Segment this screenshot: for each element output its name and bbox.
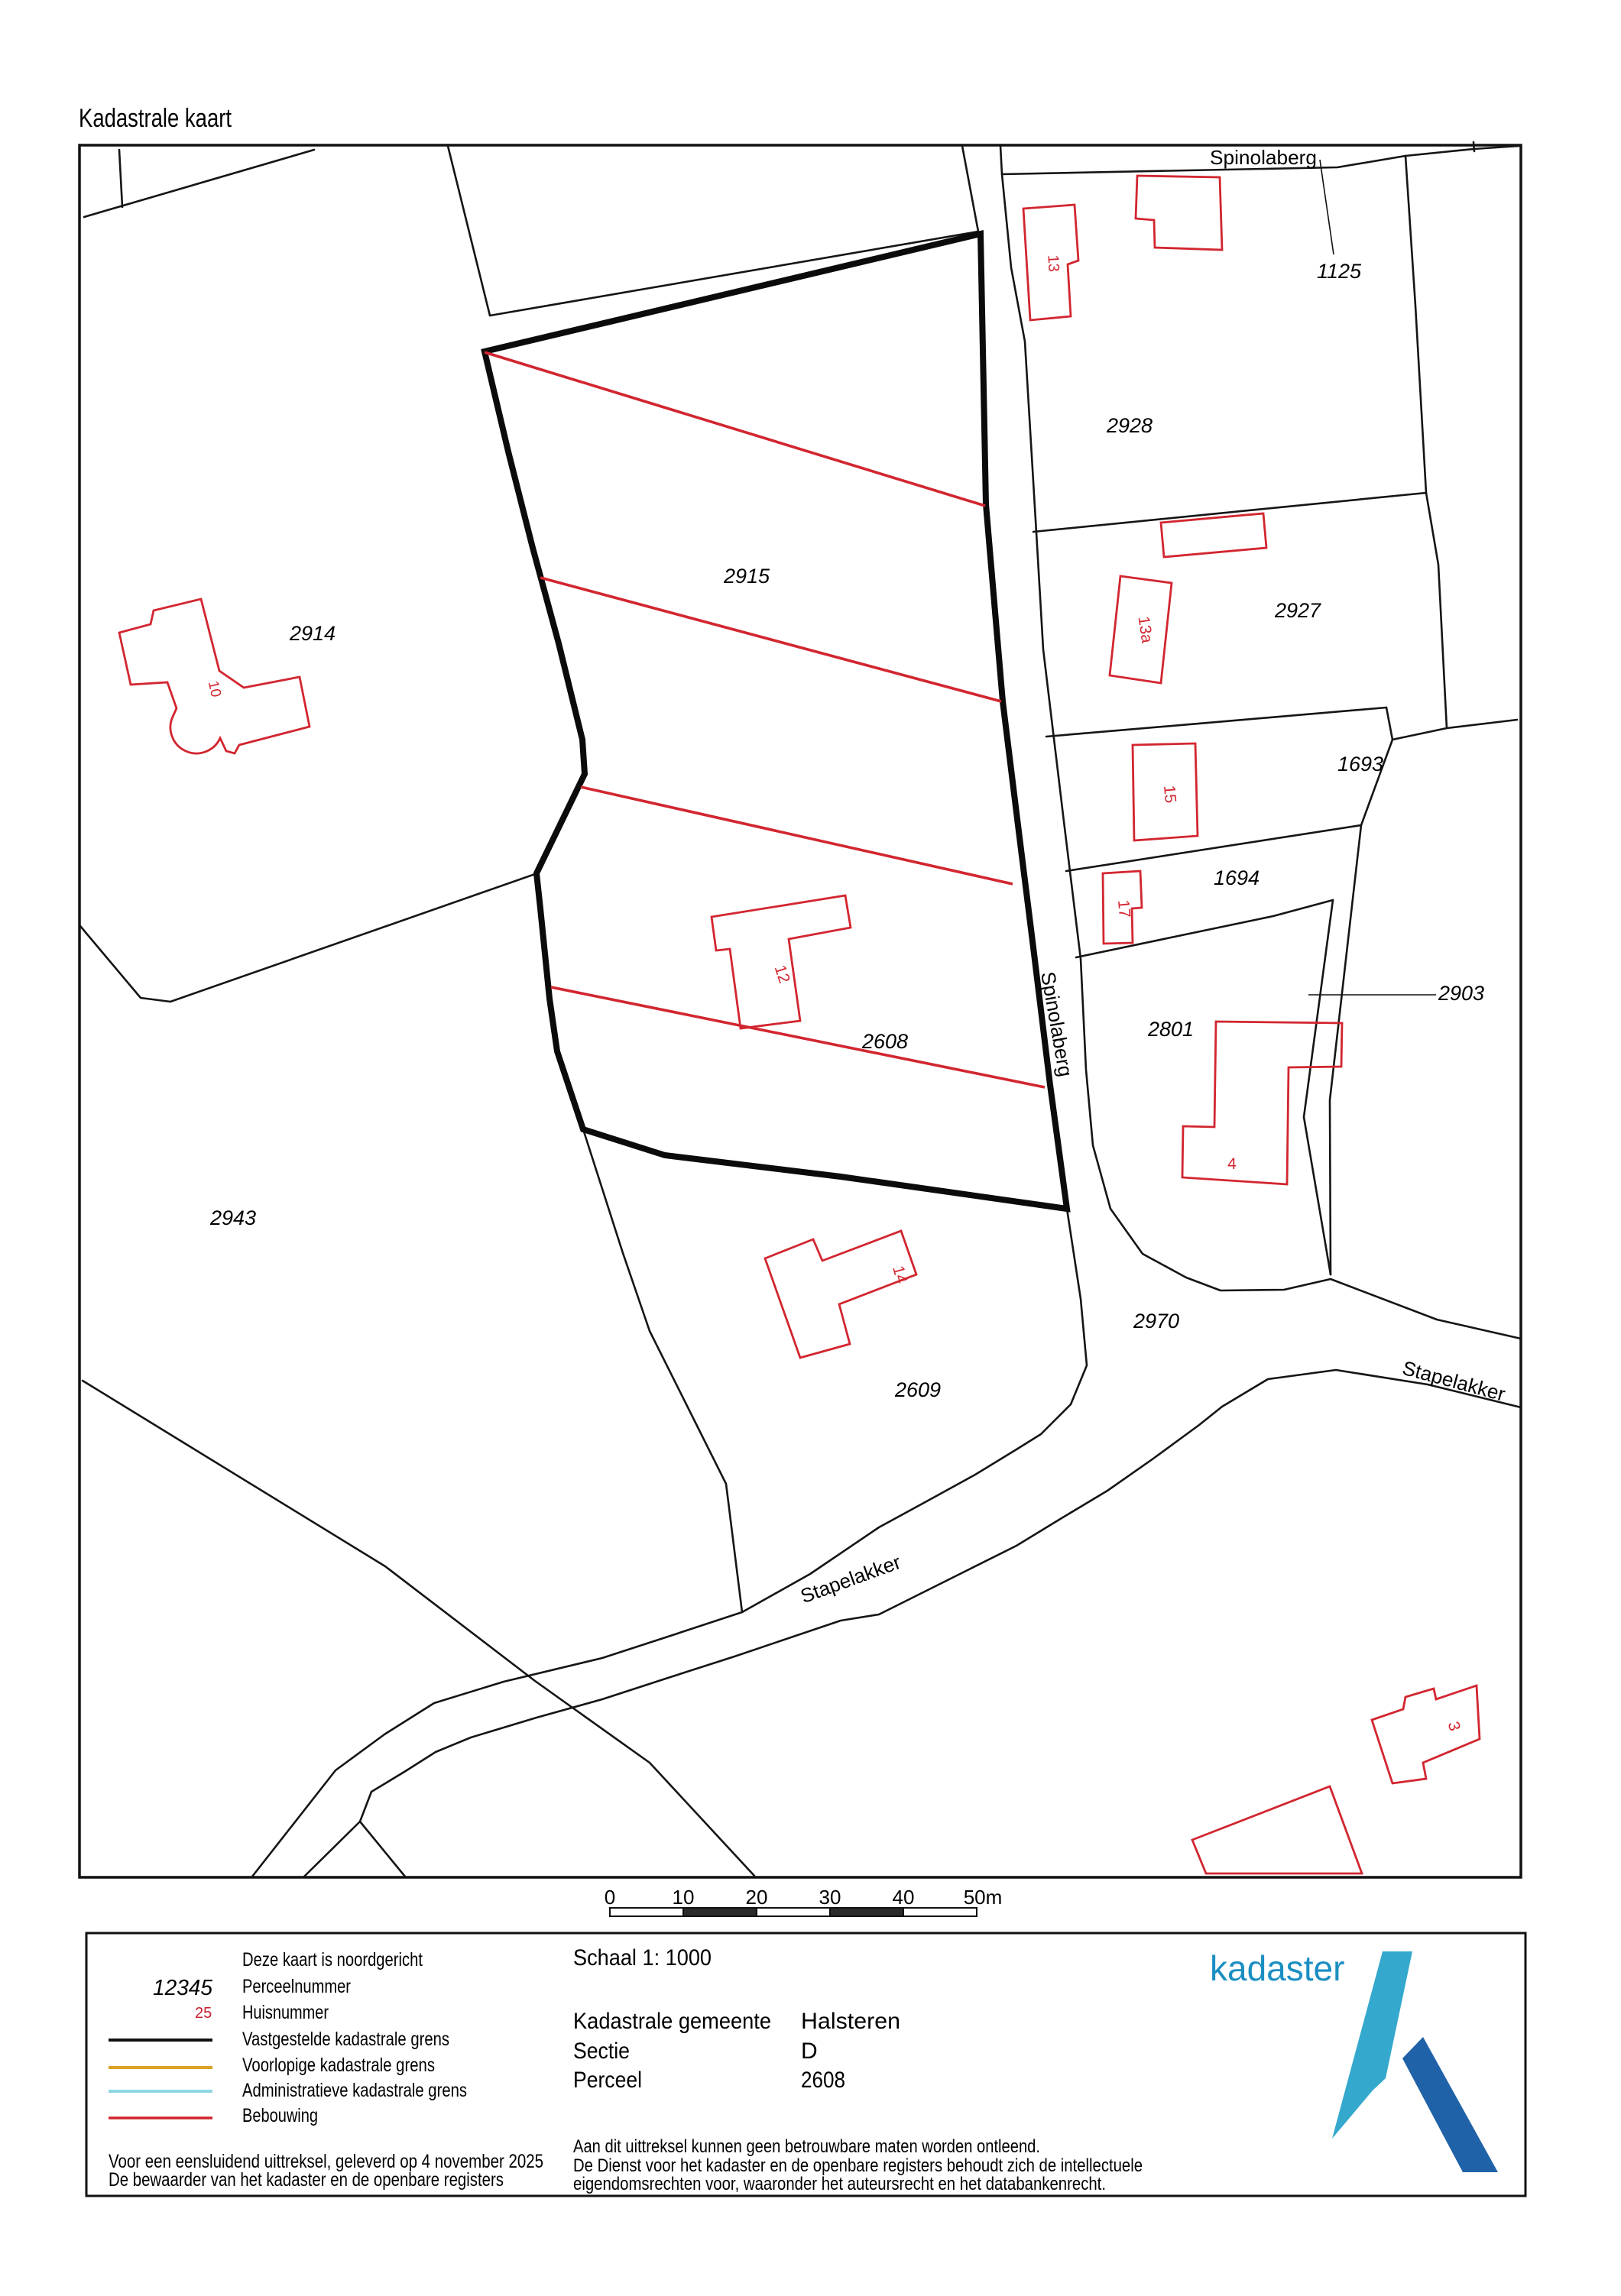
svg-text:1125: 1125 — [1317, 260, 1362, 283]
svg-text:10: 10 — [205, 679, 224, 698]
svg-text:17: 17 — [1114, 899, 1133, 918]
svg-text:Perceel: Perceel — [573, 2068, 642, 2093]
svg-text:Kadastrale gemeente: Kadastrale gemeente — [573, 2009, 771, 2034]
svg-text:2608: 2608 — [801, 2068, 845, 2093]
svg-text:2608: 2608 — [861, 1030, 908, 1053]
svg-text:Bebouwing: Bebouwing — [242, 2105, 318, 2126]
svg-text:30: 30 — [819, 1886, 841, 1909]
svg-text:4: 4 — [1227, 1155, 1237, 1173]
svg-text:Administratieve kadastrale gre: Administratieve kadastrale grens — [242, 2080, 467, 2101]
svg-text:13a: 13a — [1135, 615, 1156, 644]
svg-text:Kadastrale kaart: Kadastrale kaart — [79, 104, 232, 133]
svg-text:2903: 2903 — [1438, 982, 1484, 1005]
svg-text:Spinolaberg: Spinolaberg — [1210, 146, 1317, 169]
svg-text:0: 0 — [605, 1886, 615, 1909]
svg-text:Sectie: Sectie — [573, 2039, 630, 2064]
svg-text:2609: 2609 — [894, 1378, 941, 1401]
svg-text:D: D — [801, 2039, 818, 2064]
svg-text:2927: 2927 — [1274, 599, 1321, 622]
svg-text:25: 25 — [195, 2005, 212, 2022]
svg-text:kadaster: kadaster — [1210, 1948, 1344, 1988]
svg-text:Deze kaart is noordgericht: Deze kaart is noordgericht — [242, 1949, 423, 1971]
svg-text:Vastgestelde kadastrale grens: Vastgestelde kadastrale grens — [242, 2029, 449, 2050]
svg-text:Halsteren: Halsteren — [801, 2009, 900, 2034]
svg-text:1694: 1694 — [1214, 866, 1260, 889]
svg-text:20: 20 — [746, 1886, 768, 1909]
svg-text:50m: 50m — [964, 1886, 1003, 1909]
svg-text:1693: 1693 — [1337, 753, 1383, 776]
svg-text:10: 10 — [673, 1886, 695, 1909]
svg-text:2914: 2914 — [289, 622, 336, 645]
svg-text:eigendomsrechten voor, waarond: eigendomsrechten voor, waaronder het aut… — [573, 2174, 1106, 2194]
svg-text:15: 15 — [1160, 785, 1179, 804]
svg-text:Aan dit uittreksel kunnen geen: Aan dit uittreksel kunnen geen betrouwba… — [573, 2136, 1040, 2157]
svg-text:2943: 2943 — [209, 1206, 256, 1229]
svg-text:13: 13 — [1044, 254, 1062, 272]
svg-text:2928: 2928 — [1106, 414, 1153, 437]
svg-text:Perceelnummer: Perceelnummer — [242, 1976, 351, 1997]
svg-text:De Dienst voor het kadaster en: De Dienst voor het kadaster en de openba… — [573, 2155, 1143, 2176]
svg-text:De bewaarder van het kadaster: De bewaarder van het kadaster en de open… — [109, 2169, 504, 2191]
svg-text:40: 40 — [893, 1886, 915, 1909]
svg-text:2915: 2915 — [723, 565, 770, 588]
svg-text:Schaal 1: 1000: Schaal 1: 1000 — [573, 1945, 712, 1971]
svg-text:Huisnummer: Huisnummer — [242, 2002, 329, 2023]
svg-text:Voorlopige kadastrale grens: Voorlopige kadastrale grens — [242, 2055, 435, 2076]
svg-text:12345: 12345 — [153, 1976, 213, 2000]
svg-text:2970: 2970 — [1133, 1310, 1179, 1333]
svg-text:2801: 2801 — [1147, 1018, 1194, 1041]
